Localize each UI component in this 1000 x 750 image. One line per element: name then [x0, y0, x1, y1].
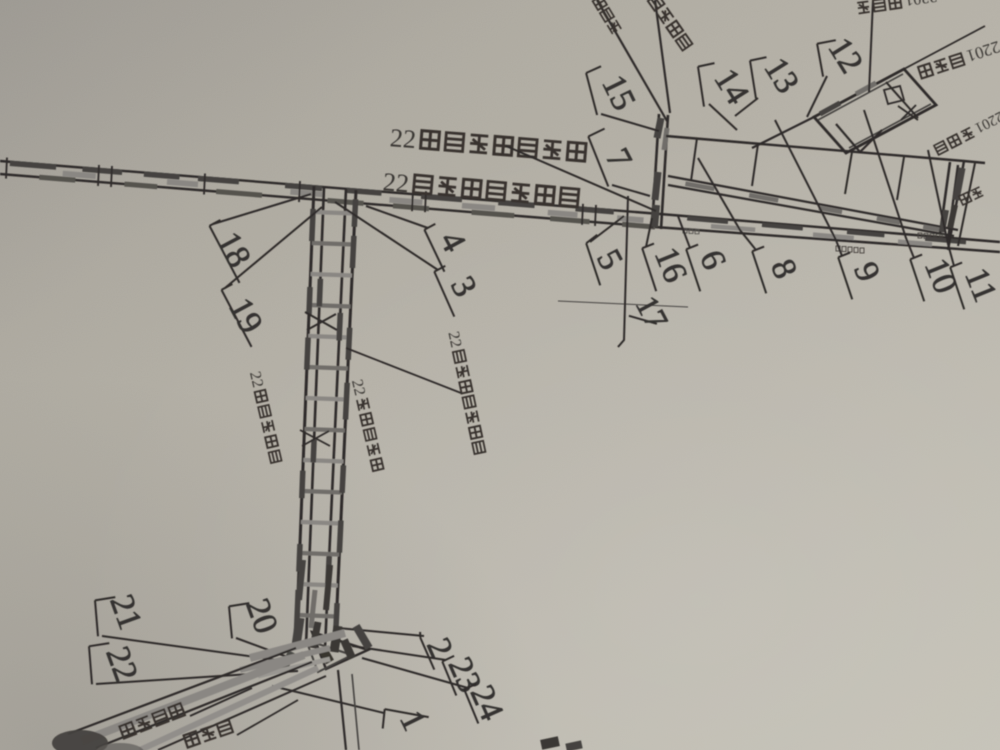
svg-text:22: 22 [389, 123, 417, 154]
svg-text:22: 22 [382, 167, 410, 198]
